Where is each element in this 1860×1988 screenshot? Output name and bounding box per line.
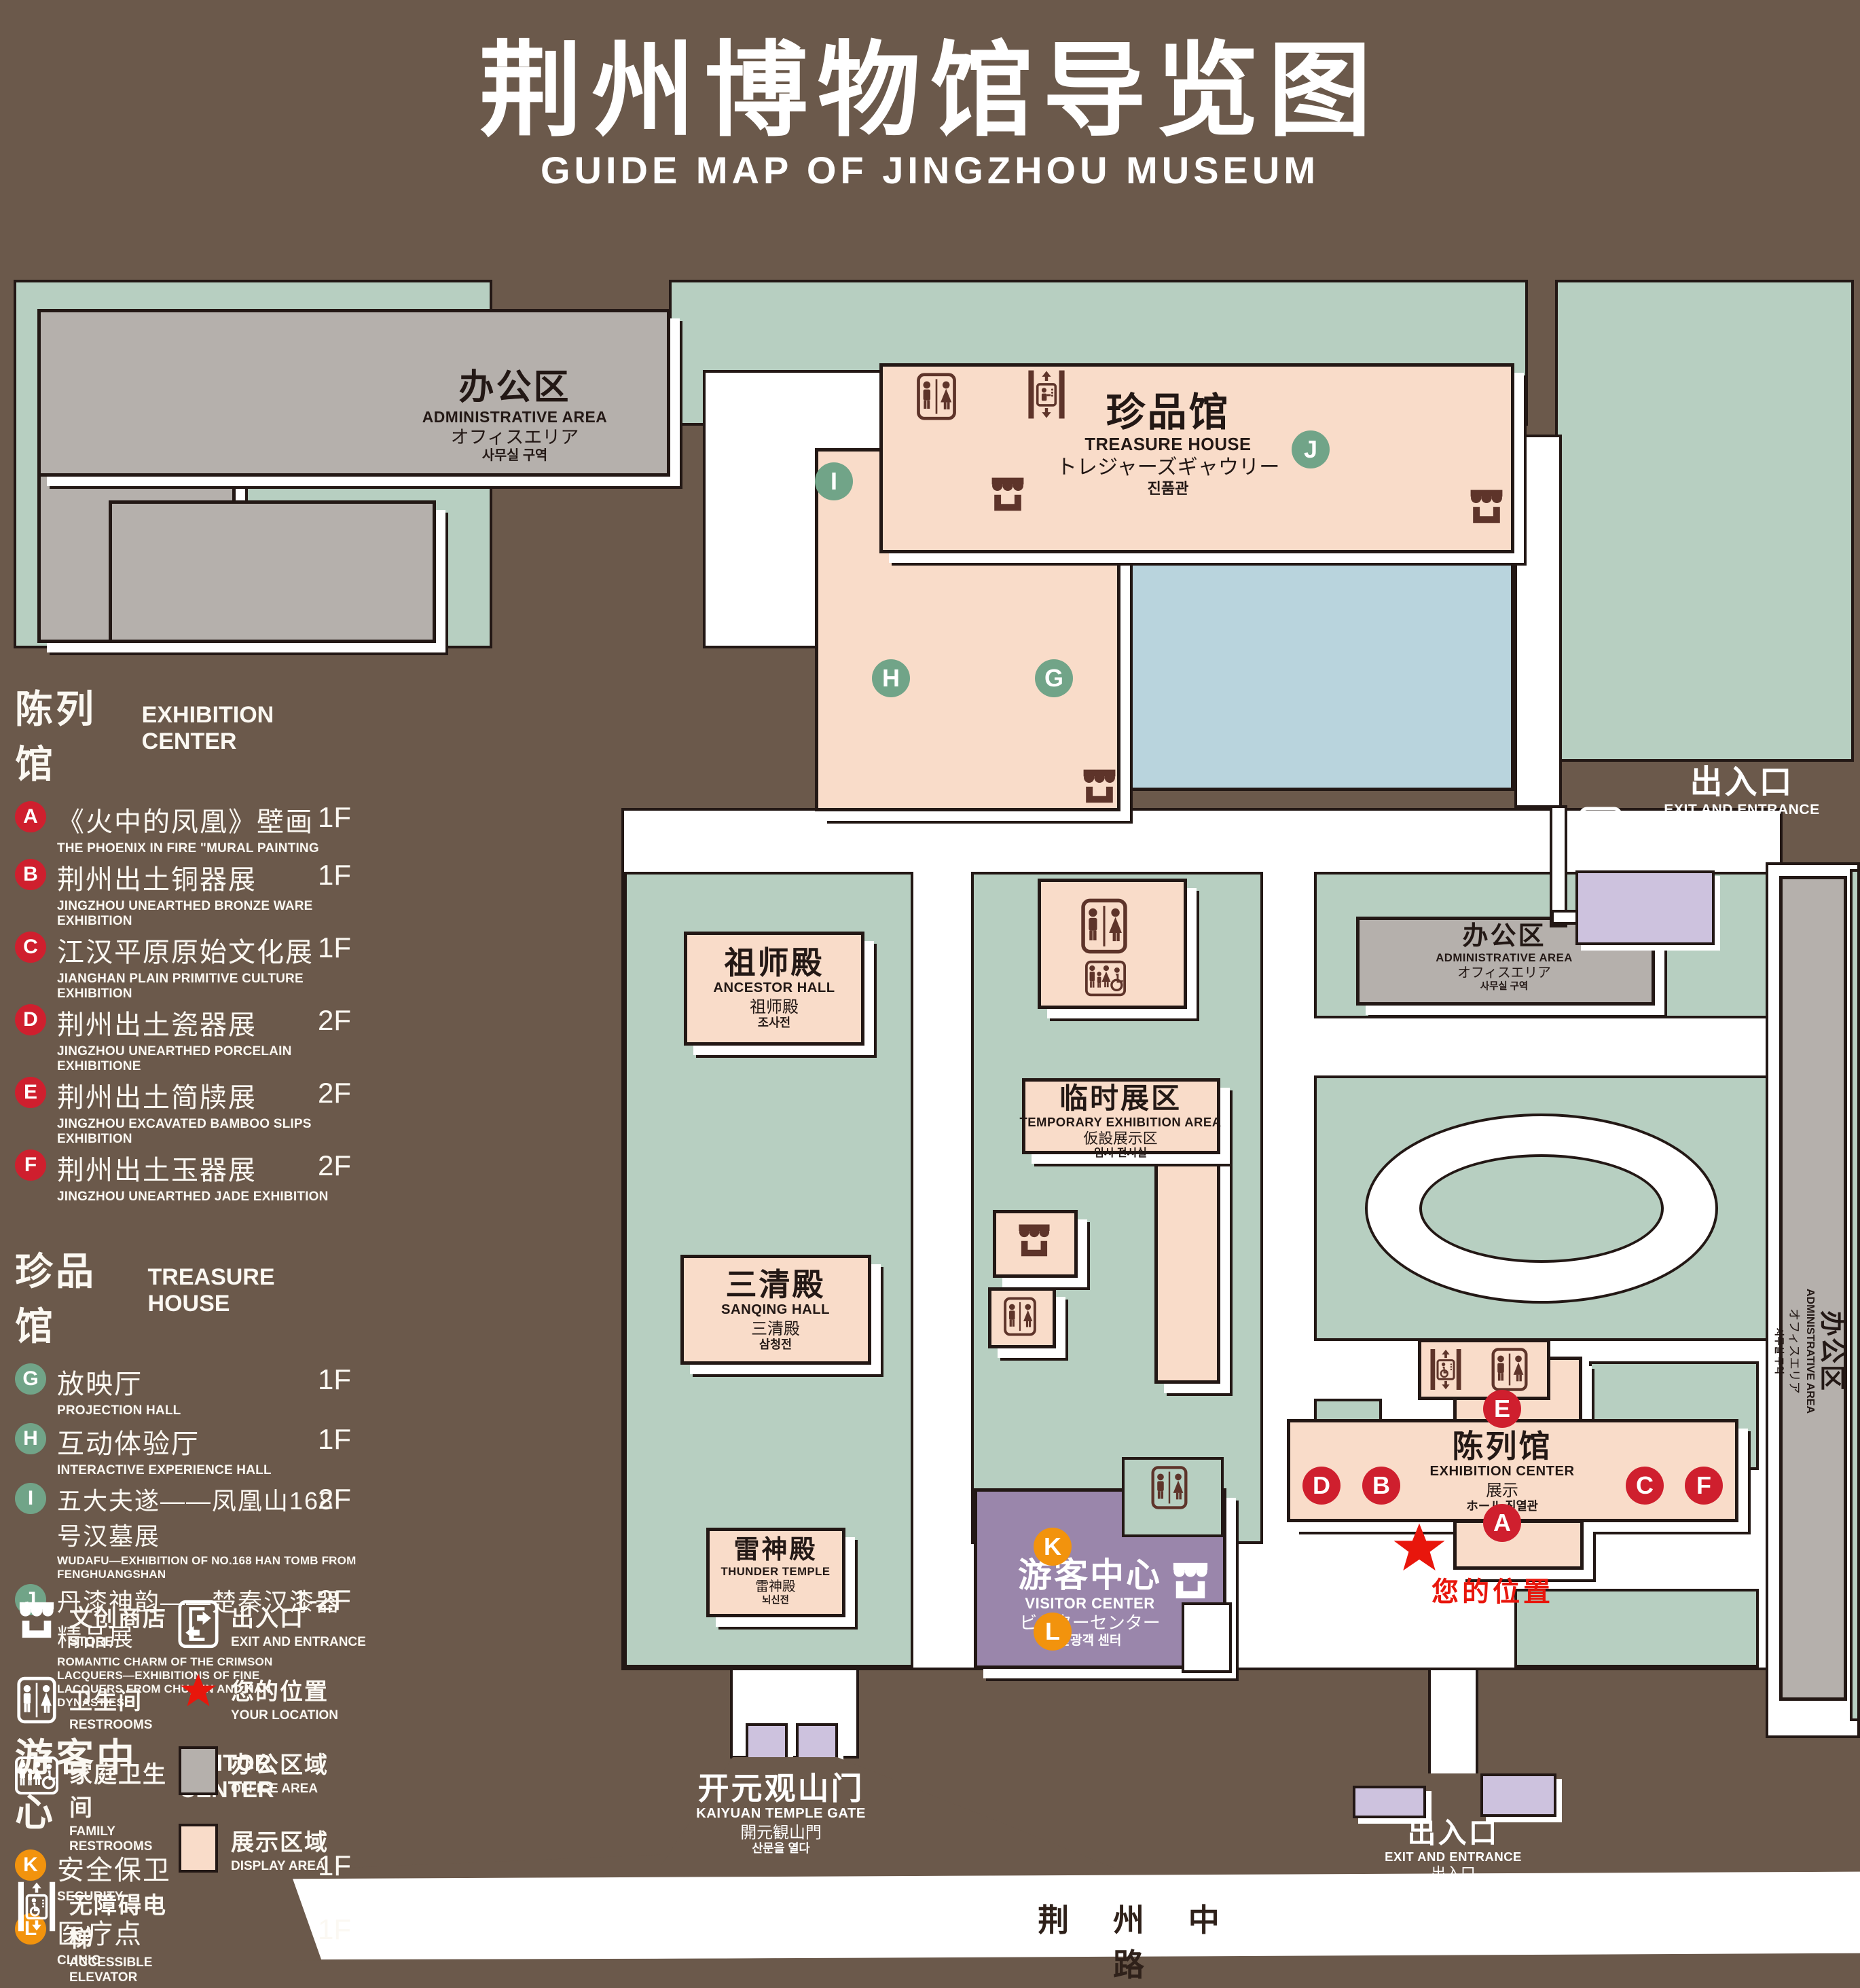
badge-G: G: [15, 1363, 46, 1395]
courtyard-right-sliver: [1850, 869, 1860, 1721]
restrooms-icon: [1490, 1347, 1529, 1392]
legend-item-F: F 荆州出土玉器展 JINGZHOU UNEARTHED JADE EXHIBI…: [15, 1148, 358, 1204]
symbol-exit: 出入口EXIT AND ENTRANCE: [177, 1600, 435, 1650]
legend-item-B: B 荆州出土铜器展 JINGZHOU UNEARTHED BRONZE WARE…: [15, 858, 358, 929]
badge-A: A: [15, 801, 46, 832]
garden-path-inner: [1419, 1154, 1664, 1263]
guide-map-poster: 荆州博物馆导览图 GUIDE MAP OF JINGZHOU MUSEUM 办公…: [0, 0, 1860, 1988]
accessible-elevator-icon: [1427, 1347, 1464, 1392]
badge-F: F: [15, 1149, 46, 1181]
ancestor-hall-label: 祖师殿 ANCESTOR HALL 祖师殿 조사전: [713, 945, 835, 1030]
symbol-accessible-elevator: 无障碍电梯ACCESSIBLE ELEVATOR: [15, 1877, 175, 1985]
sanqing-hall-label: 三清殿 SANQING HALL 三清殿 삼청전: [721, 1267, 830, 1352]
exit-icon: [1579, 807, 1622, 858]
badge-H: H: [15, 1423, 46, 1454]
marker-G: G: [1035, 659, 1073, 697]
legend-section-exhibition-center: 陈列馆 EXHIBITION CENTER: [15, 679, 358, 789]
badge-D: D: [15, 1004, 46, 1035]
exit-ne-label: 出入口 EXIT AND ENTRANCE 出入口 출입구: [1664, 765, 1819, 853]
family-restrooms-icon: [1085, 960, 1126, 997]
restrooms-icon: [1003, 1295, 1037, 1338]
store-icon: [15, 1600, 58, 1639]
legend-item-D: D 荆州出土瓷器展 JINGZHOU UNEARTHED PORCELAIN E…: [15, 1003, 358, 1074]
exit-icon: [177, 1600, 220, 1649]
treasure-house-label: 珍品馆 TREASURE HOUSE トレジャーズギャウリー 진품관: [1057, 390, 1280, 497]
accessible-elevator-icon: [15, 1877, 58, 1936]
admin-building-bottom-wing: [109, 500, 436, 643]
legend-item-A: A 《火中的凤凰》壁画 THE PHOENIX IN FIRE "MURAL P…: [15, 800, 358, 856]
temporary-exhibition-label: 临时展区 TEMPORARY EXHIBITION AREA 仮設展示区 임시 …: [1019, 1082, 1221, 1160]
symbol-restrooms: 卫生间RESTROOMS: [15, 1673, 175, 1733]
location-star-icon: [1392, 1522, 1446, 1574]
your-location-label: 您的位置: [1432, 1570, 1554, 1609]
courtyard-topright: [1555, 280, 1854, 762]
symbol-display-area: 展示区域DISPLAY AREA: [177, 1824, 435, 1874]
marker-A: A: [1483, 1504, 1521, 1542]
office-area-swatch: [177, 1746, 220, 1795]
store-icon: [1080, 767, 1119, 804]
legend-item-C: C 江汉平原原始文化展 JIANGHAN PLAIN PRIMITIVE CUL…: [15, 930, 358, 1001]
symbol-family-restrooms: 家庭卫生间FAMILY RESTROOMS: [15, 1756, 175, 1854]
pond: [1127, 516, 1514, 791]
marker-H: H: [872, 659, 910, 697]
ne-gate-block: [1575, 870, 1715, 945]
store-icon: [988, 475, 1027, 512]
legend-section-treasure-house: 珍品馆 TREASURE HOUSE: [15, 1241, 358, 1351]
admin2-label: 办公区 ADMINISTRATIVE AREA オフィスエリア 사무실 구역: [1436, 922, 1573, 992]
restrooms-icon: [15, 1673, 58, 1727]
visitor-notch-path: [1182, 1602, 1232, 1673]
elevator-icon: [1027, 368, 1066, 421]
temporary-exhibition-column: [1154, 1152, 1220, 1384]
marker-K: K: [1034, 1528, 1072, 1566]
marker-E: E: [1483, 1390, 1521, 1428]
store-icon: [1467, 487, 1506, 524]
page-subtitle: GUIDE MAP OF JINGZHOU MUSEUM: [0, 148, 1860, 192]
badge-E: E: [15, 1077, 46, 1108]
legend-item-E: E 荆州出土简牍展 JINGZHOU EXCAVATED BAMBOO SLIP…: [15, 1075, 358, 1147]
marker-L: L: [1034, 1613, 1072, 1651]
south-exit-block-left: [1353, 1786, 1426, 1818]
gate-label: 开元观山门 KAIYUAN TEMPLE GATE 開元観山門 산문을 열다: [696, 1771, 866, 1856]
symbol-your-location: 您的位置YOUR LOCATION: [177, 1673, 435, 1723]
store-icon: [1169, 1560, 1211, 1600]
marker-B: B: [1362, 1467, 1400, 1505]
symbol-store: 文创商店STORE: [15, 1600, 175, 1650]
road-label: 荆 州 中 路: [1005, 1896, 1270, 1985]
south-exit-block-right: [1480, 1773, 1556, 1817]
exit-south-label: 出入口 EXIT AND ENTRANCE 出入口 출입구: [1385, 1817, 1522, 1894]
thunder-temple-label: 雷神殿 THUNDER TEMPLE 雷神殿 뇌신전: [721, 1536, 830, 1606]
admin3-label: 办公区 ADMINISTRATIVE AREA オフィスエリア 사무실 구역: [1776, 1147, 1850, 1555]
path-topright: [1514, 435, 1562, 808]
admin1-label: 办公区 ADMINISTRATIVE AREA オフィスエリア 사무실 구역: [422, 368, 608, 464]
symbol-office-area: 办公区域OFFICE AREA: [177, 1746, 435, 1797]
page-title: 荆州博物馆导览图: [0, 7, 1860, 156]
location-star-icon: [177, 1673, 220, 1708]
restrooms-icon: [1150, 1465, 1188, 1510]
legend-item-I: I 五大夫遂——凤凰山168号汉墓展 WUDAFU—EXHIBITION OF …: [15, 1481, 358, 1581]
display-area-swatch: [177, 1824, 220, 1873]
family-restrooms-icon: [15, 1756, 58, 1795]
restrooms-icon: [1078, 898, 1130, 955]
restrooms-icon: [915, 372, 958, 421]
badge-B: B: [15, 859, 46, 890]
legend-item-H: H 互动体验厅 INTERACTIVE EXPERIENCE HALL 1F: [15, 1422, 358, 1480]
marker-C: C: [1626, 1467, 1664, 1505]
path-ne-exit-v: [1550, 805, 1567, 927]
badge-C: C: [15, 932, 46, 963]
marker-I: I: [815, 462, 853, 500]
marker-J: J: [1292, 430, 1330, 468]
legend-item-G: G 放映厅 PROJECTION HALL 1F: [15, 1362, 358, 1420]
exhibition-center-label: 陈列馆 EXHIBITION CENTER 展示 ホール 진열관: [1429, 1429, 1574, 1513]
marker-D: D: [1302, 1467, 1341, 1505]
store-icon: [1015, 1222, 1053, 1257]
badge-I: I: [15, 1483, 46, 1514]
marker-F: F: [1685, 1467, 1723, 1505]
